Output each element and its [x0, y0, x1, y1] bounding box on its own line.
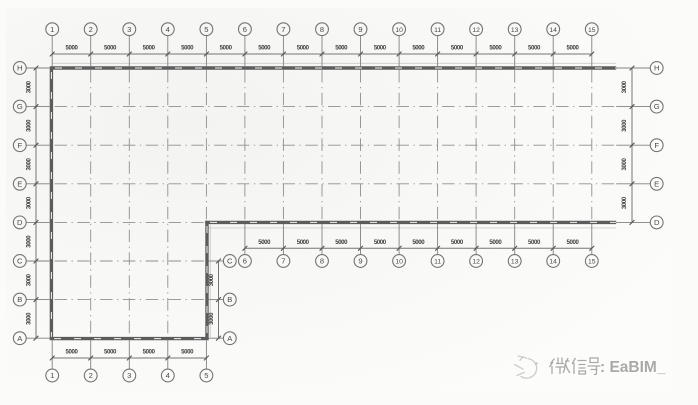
- svg-text:5000: 5000: [335, 44, 348, 51]
- svg-text:13: 13: [511, 27, 519, 34]
- svg-text:3000: 3000: [621, 119, 628, 132]
- svg-text:5000: 5000: [104, 44, 117, 51]
- svg-text:5000: 5000: [258, 44, 271, 51]
- svg-text:5000: 5000: [297, 44, 310, 51]
- svg-text:9: 9: [358, 25, 362, 34]
- svg-text:5000: 5000: [489, 239, 502, 246]
- svg-text:5000: 5000: [567, 44, 580, 51]
- svg-text:5000: 5000: [66, 44, 79, 51]
- svg-text:5000: 5000: [489, 44, 502, 51]
- svg-text:14: 14: [549, 259, 557, 266]
- svg-text:10: 10: [395, 259, 403, 266]
- svg-text:C: C: [227, 257, 233, 266]
- svg-text:5000: 5000: [374, 239, 387, 246]
- svg-text:6: 6: [243, 257, 247, 266]
- svg-text:5000: 5000: [220, 44, 233, 51]
- svg-text:5000: 5000: [374, 44, 387, 51]
- svg-text:12: 12: [472, 27, 480, 34]
- svg-text:5: 5: [204, 371, 208, 380]
- svg-text:5: 5: [204, 25, 208, 34]
- svg-text:1: 1: [50, 371, 54, 380]
- svg-text:6: 6: [243, 25, 247, 34]
- svg-text:4: 4: [166, 25, 170, 34]
- svg-text:5000: 5000: [143, 349, 156, 356]
- svg-text:5000: 5000: [528, 239, 541, 246]
- svg-text:3000: 3000: [621, 158, 628, 171]
- svg-text:9: 9: [358, 257, 362, 266]
- svg-text:3: 3: [127, 25, 131, 34]
- svg-text:F: F: [654, 141, 659, 150]
- svg-text:3000: 3000: [25, 273, 32, 286]
- svg-text:5000: 5000: [567, 239, 580, 246]
- svg-text:3000: 3000: [25, 235, 32, 248]
- svg-text:3: 3: [127, 371, 131, 380]
- svg-text:4: 4: [166, 371, 170, 380]
- svg-text:11: 11: [434, 27, 441, 34]
- svg-text:G: G: [654, 102, 660, 111]
- svg-text:12: 12: [472, 259, 480, 266]
- svg-text:E: E: [654, 179, 659, 188]
- svg-text:H: H: [654, 64, 659, 73]
- svg-text:5000: 5000: [528, 44, 541, 51]
- svg-text:5000: 5000: [335, 239, 348, 246]
- svg-text:3000: 3000: [25, 158, 32, 171]
- svg-text:5000: 5000: [297, 239, 310, 246]
- svg-text:3000: 3000: [25, 80, 32, 93]
- svg-text:2: 2: [89, 371, 93, 380]
- svg-text:15: 15: [588, 27, 596, 34]
- svg-text:D: D: [17, 218, 23, 227]
- svg-text:5000: 5000: [181, 44, 194, 51]
- svg-text:3000: 3000: [621, 196, 628, 209]
- svg-text:13: 13: [511, 259, 519, 266]
- svg-text:3000: 3000: [25, 312, 32, 325]
- svg-text:B: B: [17, 295, 22, 304]
- svg-text:8: 8: [320, 257, 324, 266]
- svg-text:3000: 3000: [621, 80, 628, 93]
- svg-text:3000: 3000: [25, 196, 32, 209]
- svg-text:5000: 5000: [412, 239, 425, 246]
- svg-text:3000: 3000: [208, 312, 215, 325]
- svg-text:H: H: [17, 64, 22, 73]
- svg-text:5000: 5000: [451, 239, 464, 246]
- svg-text:F: F: [17, 141, 22, 150]
- svg-text:8: 8: [320, 25, 324, 34]
- svg-text:7: 7: [281, 257, 285, 266]
- svg-text:5000: 5000: [66, 349, 79, 356]
- svg-text:1: 1: [50, 25, 54, 34]
- svg-text:7: 7: [281, 25, 285, 34]
- svg-text:14: 14: [549, 27, 557, 34]
- svg-text:10: 10: [395, 27, 403, 34]
- svg-text:15: 15: [588, 259, 596, 266]
- svg-text:3000: 3000: [208, 273, 215, 286]
- svg-text:D: D: [654, 218, 660, 227]
- svg-text:5000: 5000: [143, 44, 156, 51]
- svg-text:G: G: [17, 102, 23, 111]
- svg-text:3000: 3000: [25, 119, 32, 132]
- svg-text:B: B: [227, 295, 232, 304]
- svg-text:5000: 5000: [412, 44, 425, 51]
- svg-text:5000: 5000: [258, 239, 271, 246]
- svg-text:C: C: [17, 257, 23, 266]
- svg-text:E: E: [17, 179, 22, 188]
- svg-text:5000: 5000: [451, 44, 464, 51]
- svg-text:2: 2: [89, 25, 93, 34]
- svg-text:11: 11: [434, 259, 441, 266]
- svg-text:5000: 5000: [181, 349, 194, 356]
- svg-text:5000: 5000: [104, 349, 117, 356]
- svg-text:: EaBIM_: : EaBIM_: [600, 359, 666, 376]
